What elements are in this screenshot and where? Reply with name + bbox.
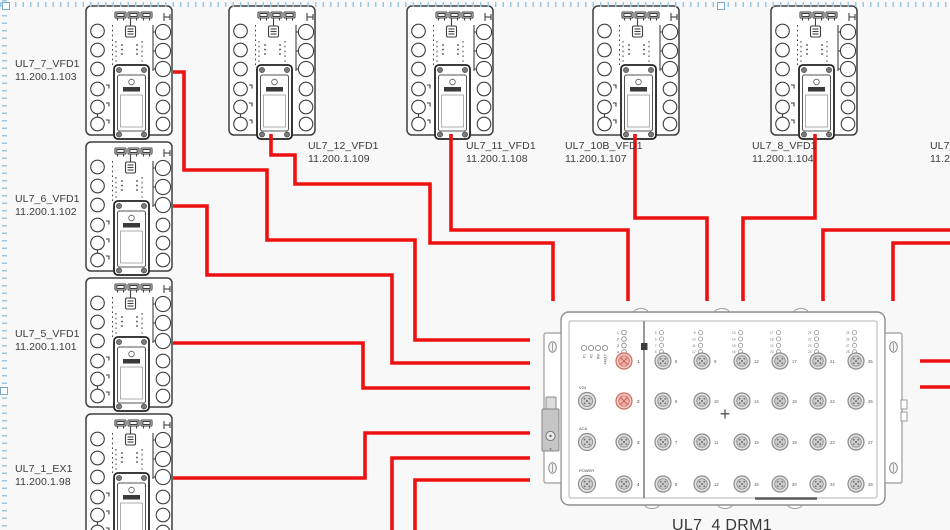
- vfd-device-graphic: [85, 277, 173, 413]
- drm-port-number: 10: [714, 399, 719, 404]
- device-name: UL7_5_VFD1: [15, 328, 80, 341]
- svg-text:5: 5: [655, 331, 657, 335]
- drm-aux-port-label: V24: [579, 385, 587, 390]
- device-ip: 11.200.1.102: [15, 206, 80, 219]
- vfd-device-graphic: [770, 5, 858, 141]
- device-ip: 11.200.1.104: [752, 153, 817, 166]
- drm-port-number: 2: [637, 399, 640, 404]
- selection-border-top: [0, 2, 950, 7]
- device-UL7_4_DRM1[interactable]: P1P2RMFAULT12341234V24ACAPOWER5678567891…: [540, 296, 912, 521]
- device-label-UL7_10B_VFD1: UL7_10B_VFD111.200.1.107: [565, 140, 643, 166]
- drm-label: UL7_4 DRM1: [672, 517, 772, 530]
- vfd-device-graphic: [85, 413, 173, 530]
- svg-text:9: 9: [694, 331, 696, 335]
- svg-text:16: 16: [732, 350, 736, 354]
- device-ip: 11.200.1.103: [15, 71, 80, 84]
- device-name: UL7_10B_VFD1: [565, 140, 643, 153]
- cable-from-bottom-2[interactable]: [415, 480, 530, 530]
- device-name: UL7_11_VFD1: [466, 140, 536, 153]
- diagram-canvas: UL7_7_VFD111.200.1.103UL7_6_VFD111.200.1…: [0, 0, 950, 530]
- drm-port-number: 15: [754, 440, 759, 445]
- drm-port-number: 25: [868, 359, 873, 364]
- svg-text:15: 15: [732, 344, 736, 348]
- drm-port-number: 12: [714, 482, 719, 487]
- device-label-UL7_6_VFD1: UL7_6_VFD111.200.1.102: [15, 193, 80, 219]
- faceplate: [621, 65, 656, 139]
- vfd-device-graphic: [85, 5, 173, 141]
- cable-from-bottom-1[interactable]: [392, 458, 530, 530]
- cable-UL7_5_VFD1[interactable]: [173, 343, 530, 388]
- vfd-device-graphic: [406, 5, 494, 141]
- device-UL7_6_VFD1[interactable]: [85, 141, 173, 282]
- selection-handle-2[interactable]: [0, 387, 8, 395]
- drm-port-number: 4: [637, 482, 640, 487]
- device-ip: 11.200.1.98: [15, 476, 73, 489]
- drm-port-number: 18: [792, 399, 797, 404]
- svg-text:19: 19: [770, 344, 774, 348]
- device-label-UL7_12_VFD1: UL7_12_VFD111.200.1.109: [308, 140, 379, 166]
- selection-handle-1[interactable]: [717, 2, 725, 10]
- svg-text:7: 7: [655, 344, 657, 348]
- device-ip: 11.200.1.107: [565, 153, 643, 166]
- cable-UL7_10B_VFD1[interactable]: [635, 134, 707, 301]
- device-name: UL7_6_VFD1: [15, 193, 80, 206]
- svg-text:10: 10: [692, 337, 696, 341]
- vfd-device-graphic: [592, 5, 680, 141]
- svg-text:26: 26: [846, 337, 850, 341]
- svg-text:20: 20: [770, 350, 774, 354]
- device-name: UL7_12_VFD1: [308, 140, 379, 153]
- drm-device-graphic: P1P2RMFAULT12341234V24ACAPOWER5678567891…: [540, 296, 912, 516]
- svg-text:22: 22: [808, 337, 812, 341]
- device-ip: 11.200.1.108: [466, 153, 536, 166]
- svg-text:25: 25: [846, 331, 850, 335]
- device-UL7_7_VFD1[interactable]: [85, 5, 173, 146]
- drm-port-number: 21: [830, 359, 835, 364]
- drm-port-number: 28: [868, 482, 873, 487]
- device-label-UL7_8_VFD1: UL7_8_VFD111.200.1.104: [752, 140, 817, 166]
- drm-status-led-label: P1: [583, 354, 587, 358]
- drm-port-number: 17: [792, 359, 797, 364]
- svg-text:8: 8: [655, 350, 657, 354]
- drm-port-number: 23: [830, 440, 835, 445]
- device-ip: 11.200.1.101: [15, 341, 80, 354]
- drm-port-number: 24: [830, 482, 835, 487]
- drm-status-led-label: P2: [590, 354, 594, 358]
- drm-port-number: 1: [637, 359, 640, 364]
- device-UL7_8_VFD1[interactable]: [770, 5, 858, 146]
- device-label-UL7_offscreen: UL7_11.2: [930, 140, 950, 166]
- drm-port-number: 13: [754, 359, 759, 364]
- svg-text:12: 12: [692, 350, 696, 354]
- faceplate: [114, 201, 149, 275]
- faceplate: [114, 473, 149, 530]
- svg-text:27: 27: [846, 344, 850, 348]
- svg-text:17: 17: [770, 331, 774, 335]
- cable-from-right-1[interactable]: [823, 230, 950, 301]
- vfd-device-graphic: [228, 5, 316, 141]
- device-ip: 11.200.1.109: [308, 153, 379, 166]
- device-name: UL7_8_VFD1: [752, 140, 817, 153]
- device-UL7_12_VFD1[interactable]: [228, 5, 316, 146]
- drm-port-number: 19: [792, 440, 797, 445]
- drm-port-number: 22: [830, 399, 835, 404]
- svg-text:13: 13: [732, 331, 736, 335]
- svg-text:21: 21: [808, 331, 812, 335]
- device-ip: 11.2: [930, 153, 950, 166]
- faceplate: [799, 65, 834, 139]
- drm-port-number: 14: [754, 399, 759, 404]
- selection-handle-0[interactable]: [2, 2, 10, 10]
- device-label-UL7_5_VFD1: UL7_5_VFD111.200.1.101: [15, 328, 80, 354]
- drm-center-mark: +: [720, 404, 731, 424]
- device-name: UL7_1_EX1: [15, 463, 73, 476]
- svg-text:11: 11: [692, 344, 696, 348]
- faceplate: [114, 65, 149, 139]
- drm-port-number: 3: [637, 440, 640, 445]
- device-label-UL7_1_EX1: UL7_1_EX111.200.1.98: [15, 463, 73, 489]
- faceplate: [257, 65, 292, 139]
- device-name: UL7_7_VFD1: [15, 58, 80, 71]
- device-UL7_10B_VFD1[interactable]: [592, 5, 680, 146]
- cable-UL7_1_EX1[interactable]: [173, 433, 530, 478]
- device-UL7_5_VFD1[interactable]: [85, 277, 173, 418]
- vfd-device-graphic: [85, 141, 173, 277]
- svg-text:18: 18: [770, 337, 774, 341]
- device-UL7_1_EX1[interactable]: [85, 413, 173, 530]
- drm-port-number: 20: [792, 482, 797, 487]
- selection-border-left: [2, 0, 7, 530]
- cable-from-right-2[interactable]: [893, 243, 950, 301]
- drm-aux-port-label: ACA: [579, 426, 588, 431]
- drm-status-led-label: RM: [597, 354, 601, 359]
- device-name: UL7_: [930, 140, 950, 153]
- svg-text:14: 14: [732, 337, 736, 341]
- device-UL7_11_VFD1[interactable]: [406, 5, 494, 146]
- drm-port-number: 26: [868, 399, 873, 404]
- svg-text:28: 28: [846, 350, 850, 354]
- svg-text:24: 24: [808, 350, 812, 354]
- svg-text:23: 23: [808, 344, 812, 348]
- drm-port-number: 27: [868, 440, 873, 445]
- drm-aux-port-label: POWER: [579, 468, 594, 473]
- svg-text:6: 6: [655, 337, 657, 341]
- faceplate: [114, 337, 149, 411]
- device-label-UL7_7_VFD1: UL7_7_VFD111.200.1.103: [15, 58, 80, 84]
- drm-port-number: 11: [714, 440, 719, 445]
- drm-status-led-label: FAULT: [604, 354, 608, 364]
- drm-port-number: 16: [754, 482, 759, 487]
- faceplate: [435, 65, 470, 139]
- device-label-UL7_11_VFD1: UL7_11_VFD111.200.1.108: [466, 140, 536, 166]
